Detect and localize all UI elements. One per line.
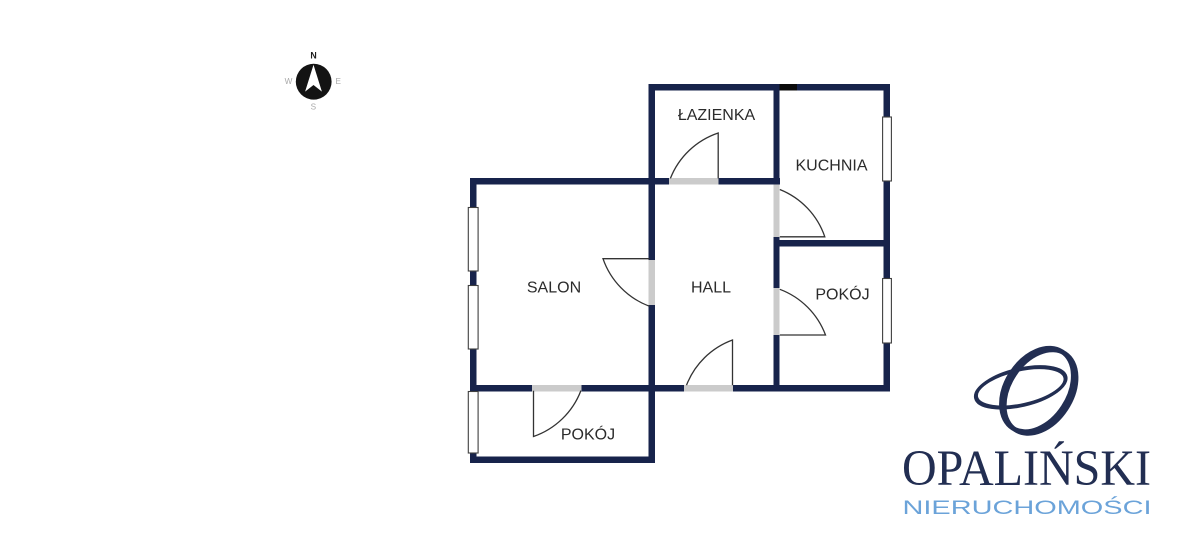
svg-text:ŁAZIENKA: ŁAZIENKA — [678, 107, 756, 124]
svg-text:HALL: HALL — [691, 280, 731, 297]
svg-text:OPALIŃSKI: OPALIŃSKI — [902, 441, 1151, 497]
svg-text:S: S — [311, 102, 317, 111]
svg-text:E: E — [335, 77, 341, 86]
svg-text:POKÓJ: POKÓJ — [561, 425, 615, 444]
svg-text:SALON: SALON — [527, 280, 581, 297]
svg-text:KUCHNIA: KUCHNIA — [795, 158, 867, 175]
svg-text:N: N — [310, 51, 316, 61]
svg-text:POKÓJ: POKÓJ — [815, 285, 869, 304]
svg-text:NIERUCHOMOŚCI: NIERUCHOMOŚCI — [903, 495, 1152, 519]
svg-text:W: W — [285, 77, 293, 86]
